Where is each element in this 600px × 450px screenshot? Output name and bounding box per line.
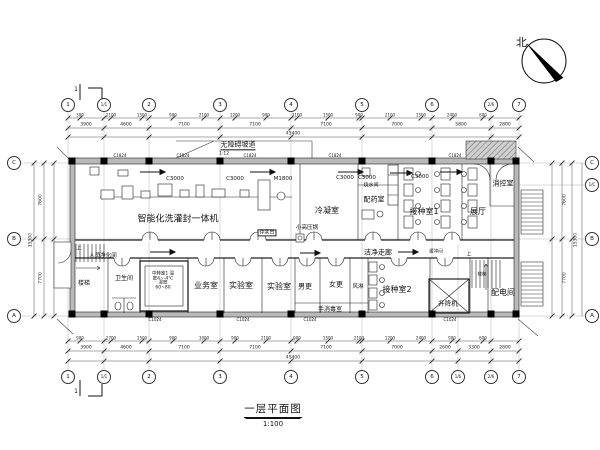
room-label-men-change: 男更: [298, 283, 312, 290]
elevator-shaft: [429, 279, 469, 313]
axis-bubble-left-A: A: [7, 309, 21, 323]
window-tag-small: C1024: [304, 318, 317, 322]
window-tag-small: C1824: [449, 154, 462, 158]
dim-number: 2600: [439, 346, 450, 351]
dim-number: 7600: [563, 194, 568, 205]
axis-bubble-right-C: C: [585, 156, 599, 170]
walls: [70, 158, 519, 317]
room-label-stair: 楼梯: [78, 281, 90, 287]
axis-bubble-bottom-2: 2: [142, 370, 156, 384]
axis-bubble-bottom-1: 1: [61, 370, 75, 384]
room-label-toilet: 卫生间: [115, 276, 133, 282]
room-label-dispensing: 配药室: [364, 196, 385, 203]
room-label-condensing: 冷凝室: [315, 207, 339, 215]
axis-bubble-bottom-3: 3: [213, 370, 227, 384]
axis-bubble-bottom-5: 5: [355, 370, 369, 384]
room-label-exhibition: 展厅: [470, 208, 486, 216]
dim-number: 4600: [120, 346, 131, 351]
column-marker: [217, 311, 224, 318]
dim-number: 7700: [39, 272, 44, 283]
room-label-personnel-clean: 人员净化间: [89, 254, 117, 260]
axis-bubble-bottom-1/1: 1/1: [97, 370, 111, 384]
axis-bubble-top-1/1: 1/1: [97, 98, 111, 112]
column-marker: [513, 158, 520, 165]
equip-label-holding-table: 存浆台: [257, 229, 276, 236]
dim-number: 3300: [468, 346, 479, 351]
axis-bubble-top-2: 2: [142, 98, 156, 112]
window-tag: C3000: [411, 175, 429, 181]
dim-number: 7100: [178, 123, 189, 128]
axis-bubble-bottom-1/6: 1/6: [451, 370, 465, 384]
room-label-fire-control: 消控室: [493, 180, 514, 187]
axis-bubble-top-4: 4: [284, 98, 298, 112]
drawing-scale: 1:100: [228, 420, 318, 428]
floor-plan-canvas: 一层平面图 1:100 北 智能化洗灌封一体机冷凝室配药室烧水间接种室1展厅消控…: [0, 0, 600, 450]
stair-up-note: 上: [466, 252, 471, 257]
window-tag-small: C1024: [444, 318, 457, 322]
axis-bubble-top-2/6: 2/6: [484, 98, 498, 112]
title-block: 一层平面图 1:100: [228, 397, 318, 428]
column-marker: [101, 311, 108, 318]
column-marker: [217, 158, 224, 165]
room-label-inoculation-2: 接种室2: [382, 286, 411, 294]
axis-bubble-bottom-4: 4: [284, 370, 298, 384]
column-marker: [101, 158, 108, 165]
column-marker: [69, 311, 76, 318]
window-tag-small: C1824: [114, 154, 127, 158]
room-label-inoculation-1: 接种室1: [409, 208, 438, 216]
axis-bubble-right-B: B: [585, 232, 599, 246]
room-label-lab-2: 实验室: [267, 283, 291, 291]
axis-bubble-left-C: C: [7, 156, 21, 170]
room-label-hand-disinfect: 手消毒室: [318, 307, 342, 313]
dim-number: 3900: [80, 123, 91, 128]
room-label-women-change: 女更: [329, 281, 343, 288]
section-mark-number: 1: [74, 389, 78, 395]
ramp-slope: 1:12: [219, 153, 229, 158]
room-label-boiler: 烧水间: [363, 183, 378, 188]
drawing-title: 一层平面图: [244, 401, 302, 418]
dim-number: 3900: [80, 346, 91, 351]
column-marker: [359, 158, 366, 165]
north-label: 北: [516, 34, 527, 50]
window-tag-small: C1824: [177, 154, 190, 158]
axis-bubble-bottom-2/6: 2/6: [484, 370, 498, 384]
room-label-air-shower: 风淋: [352, 285, 363, 291]
ramp-label: 无障碍坡道: [221, 141, 256, 150]
stair-up-note-left: 上: [76, 246, 81, 251]
column-marker: [488, 158, 495, 165]
window-tag-small: C1824: [244, 154, 257, 158]
dim-number: 7100: [320, 346, 331, 351]
window-tag-small: C1024: [149, 318, 162, 322]
room-label-buffer: 缓冲间: [429, 251, 443, 256]
axis-bubble-bottom-6: 6: [425, 370, 439, 384]
column-marker: [488, 311, 495, 318]
stair-note: 楼梯: [478, 274, 487, 279]
room-label-power: 配电间: [491, 289, 515, 297]
dim-number: 7700: [563, 272, 568, 283]
door-tag: M1800: [274, 177, 293, 183]
room-label-business: 业务室: [194, 282, 218, 290]
room-label-lab-1: 实验室: [229, 282, 253, 290]
column-marker: [288, 311, 295, 318]
column-marker: [288, 158, 295, 165]
dim-number: 7000: [391, 346, 402, 351]
dim-number: 2800: [499, 123, 510, 128]
axis-bubble-top-6: 6: [425, 98, 439, 112]
axis-bubble-right-1/C: 1/C: [585, 178, 599, 192]
window-tag: C3000: [358, 176, 376, 182]
dim-number: 7100: [249, 346, 260, 351]
window-tag-small: C1824: [329, 154, 342, 158]
column-marker: [69, 158, 76, 165]
window-tag: C3000: [226, 177, 244, 183]
axis-bubble-top-7: 7: [512, 98, 526, 112]
cold-store-note: 中转库1 温 度4~-4℃ 湿度 60~80: [152, 273, 174, 292]
window-tag-small: C1024: [237, 318, 250, 322]
axis-bubble-left-B: B: [7, 232, 21, 246]
dim-number: 15300: [574, 233, 579, 247]
equip-label-autoclave: 小高压锅: [296, 226, 318, 232]
dim-number: 2800: [499, 346, 510, 351]
toilet-fixtures: [112, 298, 136, 313]
axis-bubble-bottom-7: 7: [512, 370, 526, 384]
north-compass-icon: [522, 39, 566, 83]
axis-bubble-top-5: 5: [355, 98, 369, 112]
window-tag: C3000: [336, 176, 354, 182]
column-marker: [513, 311, 520, 318]
room-label-lift: 升降机: [438, 301, 458, 308]
dim-number: 7600: [39, 194, 44, 205]
axis-bubble-top-3: 3: [213, 98, 227, 112]
axis-bubble-top-1: 1: [61, 98, 75, 112]
window-tag: C3000: [166, 177, 184, 183]
exterior-stairs: [521, 190, 543, 306]
dim-number: 5800: [455, 123, 466, 128]
dim-number: 4600: [120, 123, 131, 128]
corridor-label: 洁净走廊: [364, 249, 392, 256]
axis-bubble-right-A: A: [585, 309, 599, 323]
section-mark-number: 1: [74, 87, 78, 93]
column-marker: [429, 158, 436, 165]
dim-number: 7100: [320, 123, 331, 128]
dim-number: 7100: [249, 123, 260, 128]
column-marker: [429, 311, 436, 318]
column-marker: [359, 311, 366, 318]
room-label-filling-line: 智能化洗灌封一体机: [137, 215, 218, 224]
dim-number: 7100: [178, 346, 189, 351]
column-marker: [146, 158, 153, 165]
left-entrance: [54, 242, 71, 288]
dim-number: 7000: [391, 123, 402, 128]
